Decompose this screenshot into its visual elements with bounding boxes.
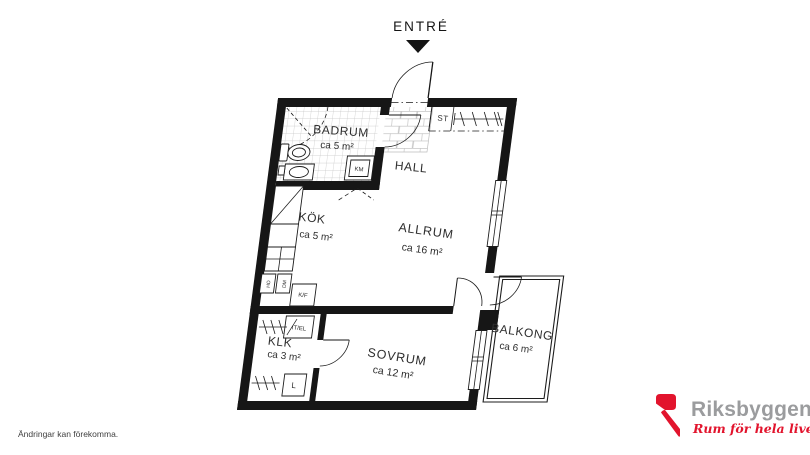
- bedroom-window: [468, 331, 487, 390]
- allrum-area: ca 16 m²: [401, 241, 444, 259]
- wardrobe-rail-icon: [453, 112, 504, 126]
- disclaimer-text: Ändringar kan förekomma.: [18, 429, 118, 439]
- stove-icon: [264, 247, 295, 271]
- km-label: KM: [354, 167, 363, 174]
- hall-label: HALL: [394, 158, 428, 175]
- kf-label: K/F: [298, 293, 308, 300]
- klk-rail-bottom-icon: [251, 376, 281, 390]
- kok-area: ca 5 m²: [299, 229, 334, 244]
- floorplan-page: ENTRÉ BADRUM ca 5 m² HALL KÖK ca 5 m² AL…: [0, 0, 810, 455]
- floorplan-canvas: ENTRÉ BADRUM ca 5 m² HALL KÖK ca 5 m² AL…: [0, 0, 810, 455]
- klk-rail-top-icon: [258, 320, 288, 334]
- klk-label: KLK: [267, 334, 293, 351]
- ho-label: HO: [266, 280, 273, 288]
- entrance-label: ENTRÉ: [393, 19, 449, 34]
- sovrum-area: ca 12 m²: [372, 364, 415, 382]
- entrance-door-swing: [392, 62, 433, 98]
- klk-area: ca 3 m²: [267, 349, 302, 364]
- entrance-arrow-icon: [406, 40, 430, 53]
- allrum-label: ALLRUM: [398, 220, 455, 242]
- riksbyggen-ribbon-icon: [656, 394, 680, 437]
- brand-logo: Riksbyggen Rum för hela livet: [656, 394, 810, 437]
- toilet-icon: [279, 144, 311, 161]
- klk-door-swing: [320, 340, 349, 366]
- brand-tagline: Rum för hela livet: [692, 421, 810, 436]
- dm-label: DM: [282, 280, 289, 288]
- brand-name: Riksbyggen: [691, 398, 810, 421]
- st-label: ST: [437, 114, 449, 124]
- bedroom-door-swing: [454, 278, 486, 306]
- livingroom-window: [487, 181, 507, 247]
- kok-label: KÖK: [298, 209, 327, 226]
